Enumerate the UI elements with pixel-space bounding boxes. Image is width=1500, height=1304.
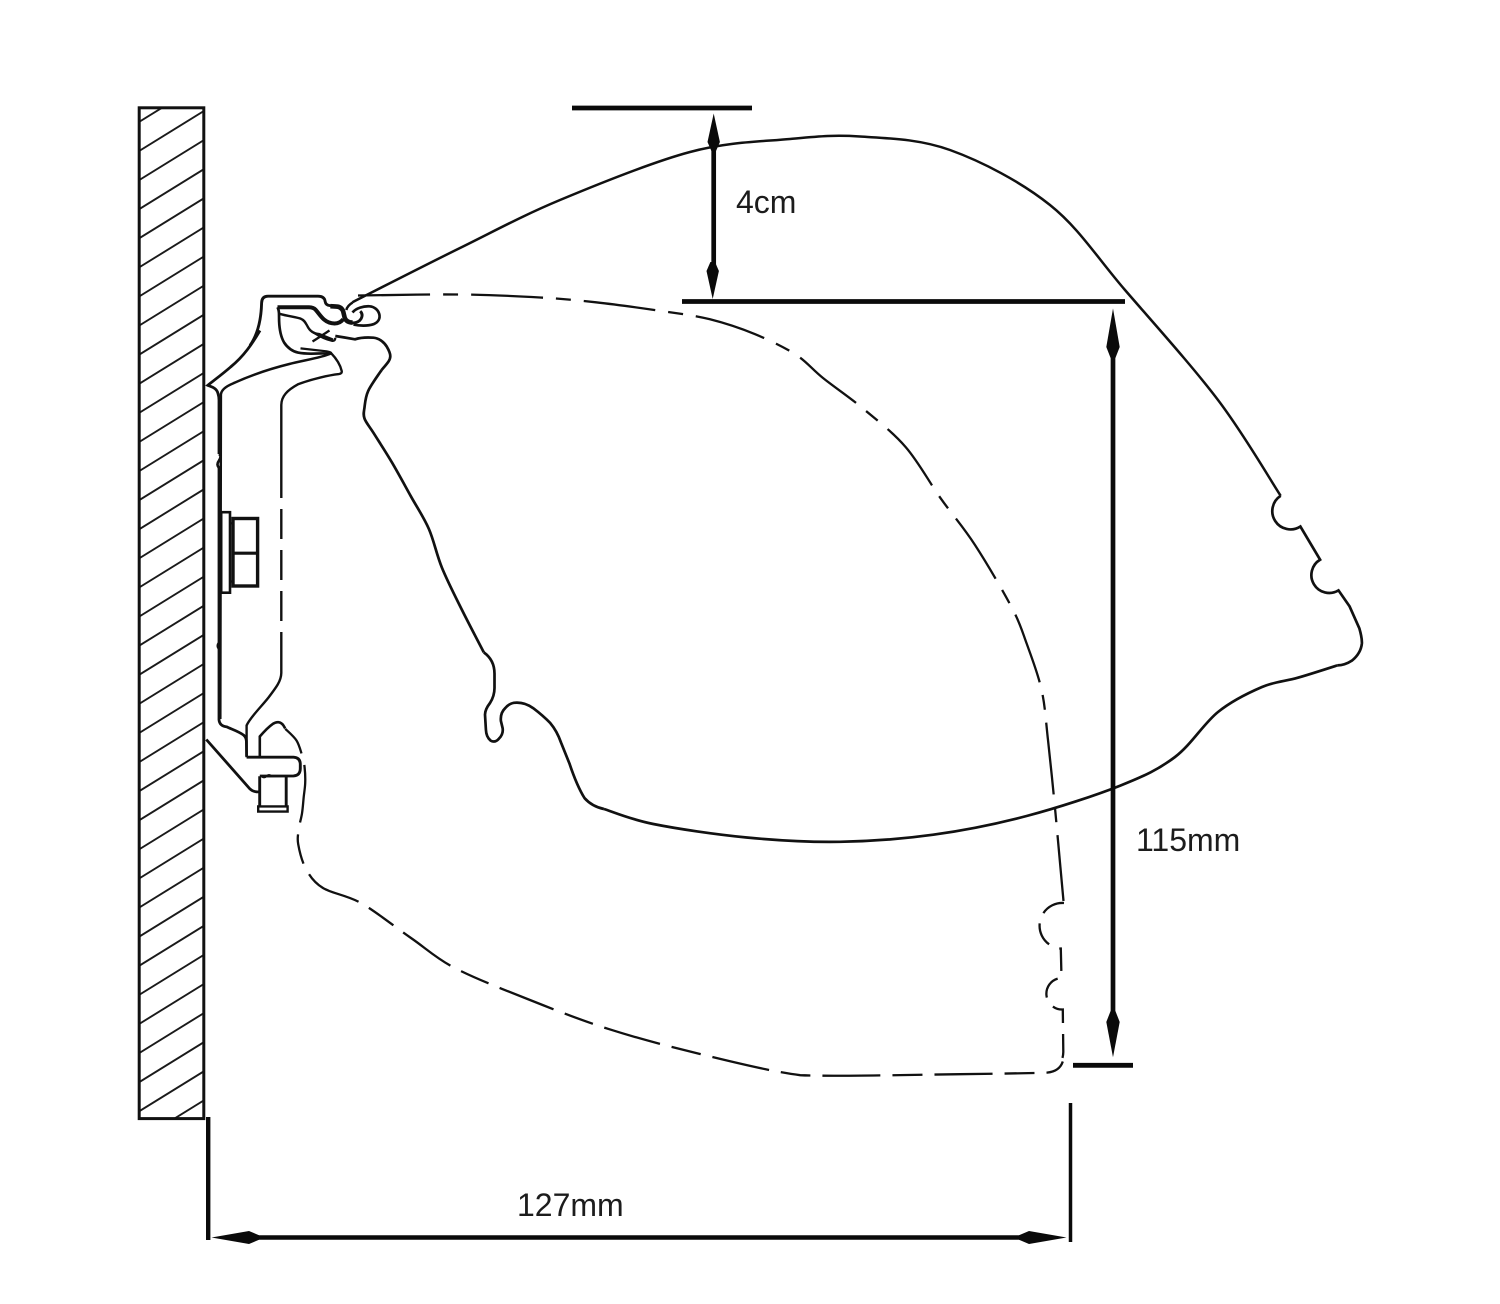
svg-text:127mm: 127mm <box>517 1187 624 1223</box>
svg-text:4cm: 4cm <box>736 184 796 220</box>
svg-text:115mm: 115mm <box>1136 822 1240 858</box>
